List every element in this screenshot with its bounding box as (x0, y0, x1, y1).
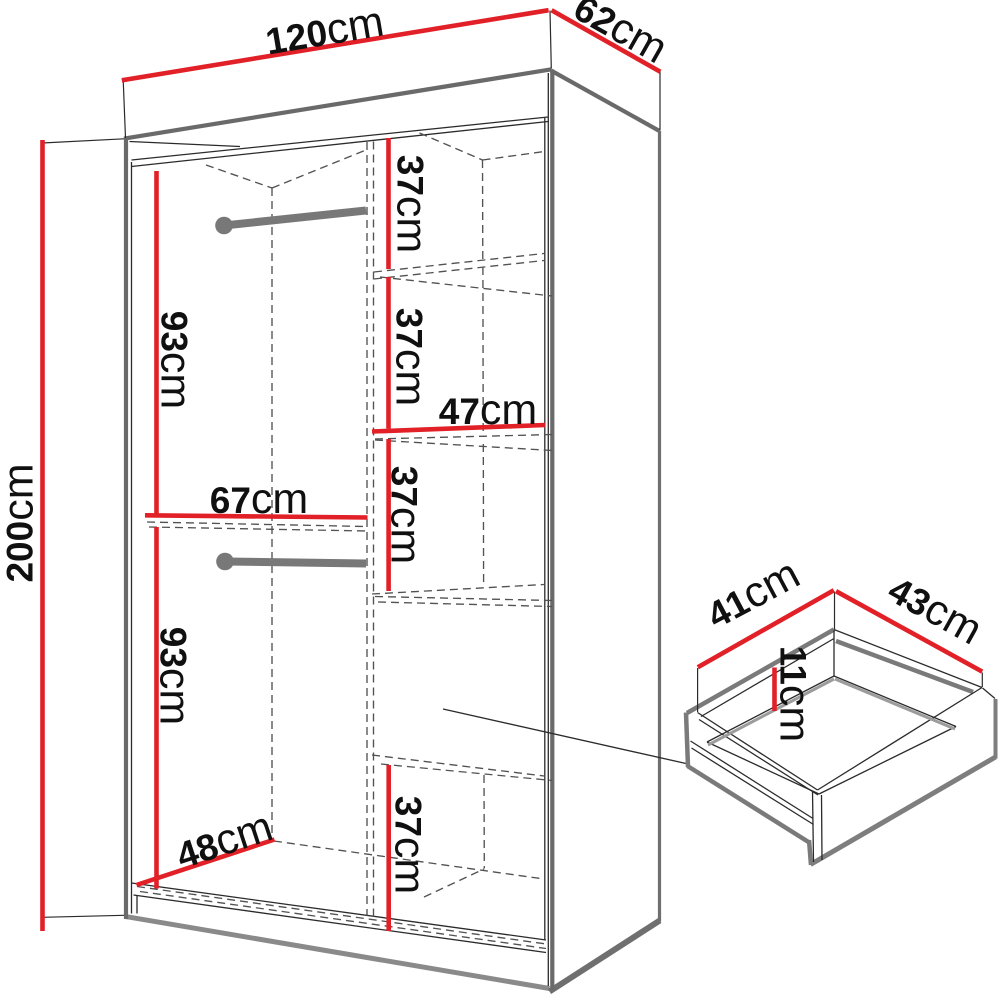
svg-text:200cm: 200cm (0, 463, 43, 582)
svg-text:37cm: 37cm (387, 308, 435, 406)
svg-text:37cm: 37cm (388, 155, 436, 253)
svg-text:47cm: 47cm (439, 386, 537, 434)
svg-text:37cm: 37cm (386, 796, 434, 894)
svg-text:67cm: 67cm (210, 475, 308, 523)
svg-text:93cm: 93cm (151, 627, 199, 725)
svg-text:11cm: 11cm (771, 646, 819, 742)
svg-text:93cm: 93cm (152, 311, 200, 409)
svg-text:37cm: 37cm (382, 466, 430, 564)
